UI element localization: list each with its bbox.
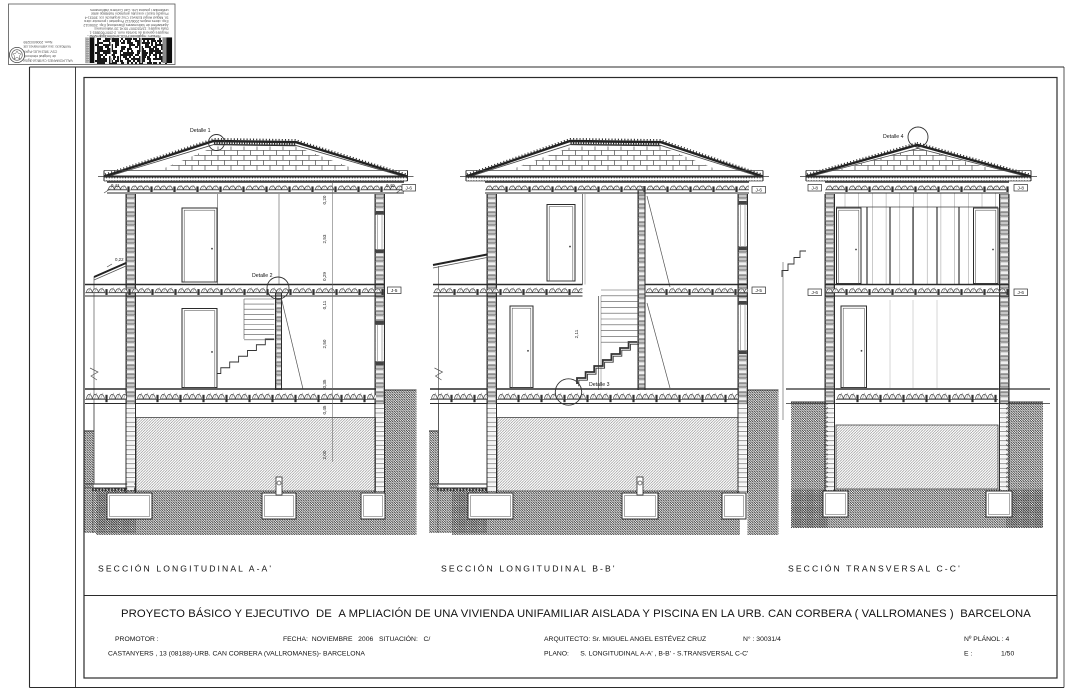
svg-text:0,45: 0,45 xyxy=(322,405,327,414)
svg-text:J-5: J-5 xyxy=(756,288,763,293)
svg-text:2,00: 2,00 xyxy=(322,450,327,459)
svg-text:J-5: J-5 xyxy=(391,288,398,293)
svg-text:ARQUITECTO: Sr. MIGUEL ANGEL E: ARQUITECTO: Sr. MIGUEL ANGEL ESTÉVEZ CRU… xyxy=(544,634,706,643)
svg-text:0,20: 0,20 xyxy=(322,195,327,204)
svg-text:N° : 30031/4: N° : 30031/4 xyxy=(743,635,781,643)
svg-text:SECCIÓN LONGITUDINAL B-B': SECCIÓN LONGITUDINAL B-B' xyxy=(441,564,617,574)
svg-text:0,29: 0,29 xyxy=(322,272,327,281)
svg-text:0,40: 0,40 xyxy=(386,183,395,188)
svg-text:SECCIÓN TRANSVERSAL C-C': SECCIÓN TRANSVERSAL C-C' xyxy=(788,564,962,574)
svg-text:J-6: J-6 xyxy=(812,290,819,295)
svg-text:J-6: J-6 xyxy=(406,186,413,191)
svg-text:0,41: 0,41 xyxy=(111,183,120,188)
svg-text:PLANO: S. LONGITUDINAL A: PLANO: S. LONGITUDINAL A-A' , B-B' - S.T… xyxy=(544,651,748,658)
svg-text:unifamiliar i piscina Urb. Can: unifamiliar i piscina Urb. Can Corbera V… xyxy=(90,8,169,12)
svg-text:Detalle 4: Detalle 4 xyxy=(883,134,904,140)
svg-text:CASTANYERS , 13 (08188)-URB. C: CASTANYERS , 13 (08188)-URB. CAN CORBERA… xyxy=(108,651,365,658)
svg-text:PROMOTOR :: PROMOTOR : xyxy=(115,636,159,643)
svg-text:SECCIÓN LONGITUDINAL A-A': SECCIÓN LONGITUDINAL A-A' xyxy=(98,564,273,574)
svg-text:2,50: 2,50 xyxy=(322,339,327,348)
svg-text:2,11: 2,11 xyxy=(574,329,579,338)
svg-text:0,11: 0,11 xyxy=(322,300,327,309)
svg-text:PROYECTO BÁSICO Y EJECUTIVO D: PROYECTO BÁSICO Y EJECUTIVO DE A MPLIACI… xyxy=(121,607,1031,620)
svg-text:VALLROMANES Certificat digital: VALLROMANES Certificat digital xyxy=(23,59,73,63)
svg-text:J-8: J-8 xyxy=(1018,186,1025,191)
svg-text:0,22: 0,22 xyxy=(115,257,124,262)
svg-text:Detalle 1: Detalle 1 xyxy=(190,128,211,134)
svg-text:Detalle 2: Detalle 2 xyxy=(252,273,273,279)
svg-text:J-6: J-6 xyxy=(1018,290,1025,295)
svg-text:Detalle 3: Detalle 3 xyxy=(589,382,610,388)
svg-text:Num. 2006/003259: Num. 2006/003259 xyxy=(23,40,52,44)
svg-text:de l'original electronic: de l'original electronic xyxy=(23,54,56,58)
svg-text:J-6: J-6 xyxy=(756,188,763,193)
svg-text:1/50: 1/50 xyxy=(1001,651,1014,658)
svg-text:Verificacio: seu.vallromanes.c: Verificacio: seu.vallromanes.cat xyxy=(23,45,71,49)
svg-text:J-8: J-8 xyxy=(812,186,819,191)
svg-text:CSV: 9fE2-kL81-PqR4: CSV: 9fE2-kL81-PqR4 xyxy=(23,49,57,53)
svg-text:2,53: 2,53 xyxy=(322,234,327,243)
svg-text:E :: E : xyxy=(964,651,972,658)
svg-text:FECHA: NOVIEMBRE 2006 SIT: FECHA: NOVIEMBRE 2006 SITUACIÓN: C/ xyxy=(283,634,430,643)
svg-text:0,35: 0,35 xyxy=(322,379,327,388)
svg-text:Nº PLÁNOL : 4: Nº PLÁNOL : 4 xyxy=(964,634,1010,643)
